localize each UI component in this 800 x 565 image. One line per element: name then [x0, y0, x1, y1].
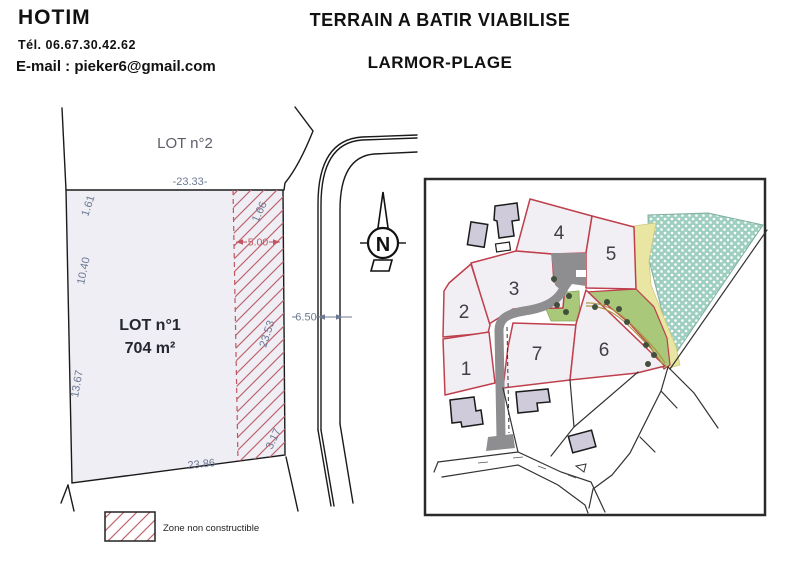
building-shed [496, 242, 511, 252]
site-map: 1 2 3 4 5 6 7 [418, 175, 786, 520]
legend: Zone non constructible [105, 512, 259, 541]
legend-hatch-swatch [105, 512, 155, 541]
dim-bottom: 23.86 [187, 457, 216, 472]
building-2 [467, 222, 487, 247]
legend-label: Zone non constructible [163, 523, 259, 534]
lot2-label: LOT n°2 [157, 135, 213, 152]
company-name: HOTIM [18, 6, 91, 30]
non-buildable-zone [233, 190, 285, 461]
page-title: TERRAIN A BATIR VIABILISE [240, 10, 640, 31]
svg-text:5.00: 5.00 [248, 237, 269, 249]
svg-text:6.50: 6.50 [295, 312, 316, 324]
map-lot-2-label: 2 [459, 302, 470, 323]
dim-top: -23.33- [173, 176, 208, 188]
north-arrow-icon: N [360, 192, 406, 271]
street-lines [318, 135, 417, 506]
plot-plan-drawing: LOT n°2 LOT n°1 704 m² -23.33- 1.61 10.4… [0, 90, 420, 565]
company-phone: Tél. 06.67.30.42.62 [18, 38, 136, 52]
lot1-label: LOT n°1 [119, 317, 181, 334]
page-subtitle: LARMOR-PLAGE [240, 53, 640, 73]
dimension-road-width: 6.50 [292, 312, 352, 324]
map-lot-6-label: 6 [599, 340, 610, 361]
company-email: E-mail : pieker6@gmail.com [16, 58, 216, 75]
lot1-area-label: 704 m² [125, 340, 176, 357]
north-label: N [376, 234, 390, 256]
map-lot-1-label: 1 [461, 359, 472, 380]
map-lot-3-label: 3 [509, 279, 520, 300]
map-lot-7-label: 7 [532, 344, 543, 365]
map-lot-5-label: 5 [606, 244, 617, 265]
document-title-block: TERRAIN A BATIR VIABILISE LARMOR-PLAGE [240, 10, 640, 73]
map-lot-4-label: 4 [554, 223, 565, 244]
